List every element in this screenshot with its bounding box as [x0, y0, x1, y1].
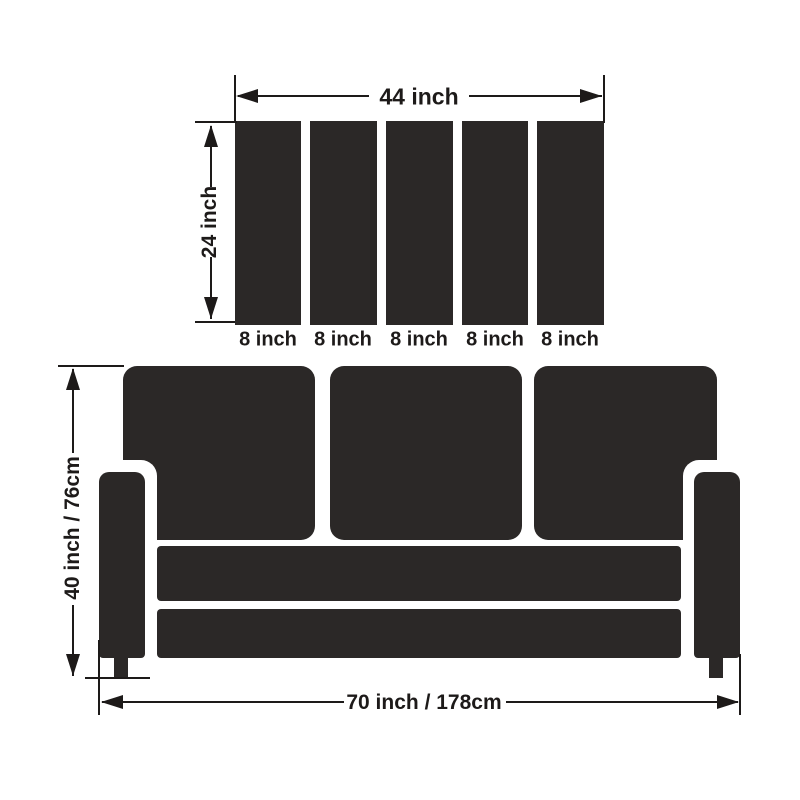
- arrowhead-down-icon: [66, 654, 80, 676]
- sofa-armrest-left: [99, 472, 145, 658]
- slat-panel: [310, 121, 377, 325]
- extension-line: [195, 321, 235, 323]
- slat-width-label: 8 inch: [314, 329, 372, 352]
- arrowhead-up-icon: [204, 125, 218, 147]
- extension-line: [603, 75, 605, 123]
- extension-line: [85, 677, 150, 679]
- sofa-leg-left: [114, 656, 128, 678]
- sofa-base-band: [157, 609, 681, 658]
- slat-height-label: 24 inch: [198, 186, 222, 258]
- extension-line: [739, 654, 741, 715]
- sofa-seat-band: [157, 546, 681, 601]
- sofa-back-cushion: [330, 366, 522, 540]
- arrowhead-right-icon: [717, 695, 739, 709]
- slat-width-label: 8 inch: [239, 329, 297, 352]
- arrowhead-down-icon: [204, 297, 218, 319]
- extension-line: [58, 365, 124, 367]
- sofa-width-label: 70 inch / 178cm: [346, 691, 501, 715]
- slat-total-width-label: 44 inch: [379, 84, 458, 111]
- arrowhead-up-icon: [66, 368, 80, 390]
- sofa-armrest-right: [694, 472, 740, 658]
- arrowhead-left-icon: [236, 89, 258, 103]
- arrowhead-right-icon: [580, 89, 602, 103]
- dimension-line: [506, 701, 738, 703]
- sofa-leg-right: [709, 656, 723, 678]
- sofa-dimension-diagram: 44 inch 24 inch 8 inch 8 inch 8 inch 8 i…: [0, 0, 800, 800]
- slat-panel: [235, 121, 301, 325]
- sofa-height-label: 40 inch / 76cm: [61, 456, 85, 600]
- slat-width-label: 8 inch: [390, 329, 448, 352]
- extension-line: [195, 121, 237, 123]
- slat-width-label: 8 inch: [466, 329, 524, 352]
- slat-width-label: 8 inch: [541, 329, 599, 352]
- arrowhead-left-icon: [101, 695, 123, 709]
- slat-panel: [386, 121, 453, 325]
- slat-panel: [537, 121, 604, 325]
- dimension-line: [102, 701, 344, 703]
- slat-panel: [462, 121, 528, 325]
- extension-line: [98, 640, 100, 715]
